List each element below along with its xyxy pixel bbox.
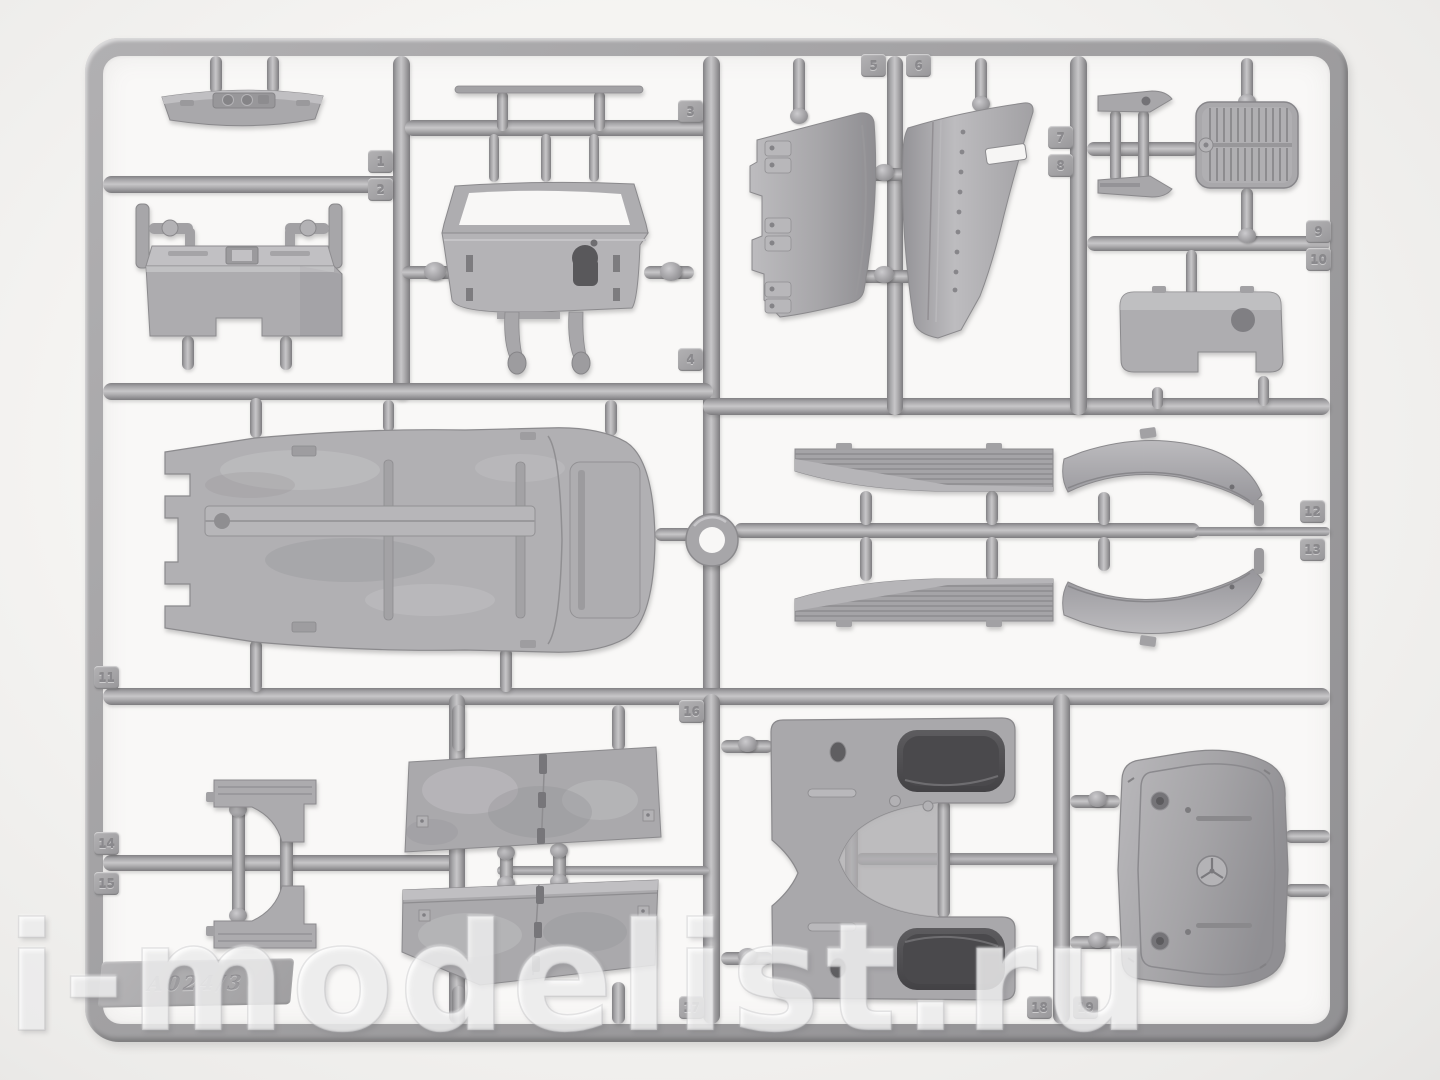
part-number-tag: 11	[94, 666, 119, 689]
gate-bulb	[1238, 228, 1256, 243]
part-number-tag: 1	[368, 150, 393, 173]
part-radiator-cowl	[1110, 738, 1295, 998]
part-spare-wheel-ring	[680, 508, 746, 574]
part-number-tag: 14	[94, 832, 119, 855]
part-fender-aprons	[200, 775, 330, 955]
part-floor-plate	[1190, 98, 1305, 193]
runner-rail	[1070, 56, 1087, 415]
part-windscreen-cowl	[398, 178, 698, 378]
part-number-tag: 9	[1306, 220, 1331, 243]
part-number-tag: 7	[1048, 126, 1073, 149]
runner-rail	[1087, 236, 1330, 251]
part-rear-valance	[1110, 280, 1295, 410]
part-running-boards	[780, 440, 1070, 630]
part-bonnet-side-left	[745, 108, 875, 338]
part-number-tag: 16	[679, 700, 704, 723]
gate-bulb	[874, 164, 894, 181]
part-number-tag: 3	[678, 100, 703, 123]
part-rear-fenders	[1055, 418, 1295, 658]
part-number-tag: 4	[678, 348, 703, 371]
sprue-gate	[541, 134, 551, 182]
part-number-tag: 10	[1306, 248, 1331, 271]
part-engine-mounts	[1092, 88, 1182, 208]
part-bonnet-side-right	[895, 100, 1040, 345]
part-number-tag: 6	[906, 54, 931, 77]
runner-rail	[405, 120, 713, 136]
part-number-tag: 5	[861, 54, 886, 77]
part-number-tag: 18	[1027, 996, 1052, 1019]
sprue-photo: 1 2 3 4 5 6 7 8 9 10 11 12 13 14 15 16 1…	[0, 0, 1440, 1080]
part-number-tag: 8	[1048, 154, 1073, 177]
runner-rail	[703, 56, 720, 705]
sprue-gate	[489, 134, 499, 182]
sprue-gate	[594, 91, 605, 131]
part-number-tag: 19	[1073, 996, 1098, 1019]
gate-bulb	[1088, 791, 1107, 807]
gate-bulb	[1088, 932, 1107, 948]
part-chassis-floor	[130, 415, 690, 665]
part-instrument-panel	[150, 80, 335, 132]
part-front-fenders	[715, 712, 1075, 1012]
part-bulkhead-firewall	[128, 198, 353, 376]
sprue-gate	[497, 91, 508, 131]
part-number-tag: 2	[368, 178, 393, 201]
part-number-tag: 15	[94, 872, 119, 895]
runner-rail	[103, 176, 403, 193]
part-tie-rod	[452, 84, 647, 96]
runner-rail	[103, 383, 713, 400]
sprue-gate	[589, 134, 599, 182]
part-number-tag: 12	[1300, 500, 1325, 523]
part-bonnet-tops	[395, 740, 670, 995]
mold-stamp-tab: A024/3	[98, 958, 294, 1007]
part-number-tag: 13	[1300, 538, 1325, 561]
gate-bulb	[874, 266, 894, 283]
part-number-tag: 17	[679, 996, 704, 1019]
